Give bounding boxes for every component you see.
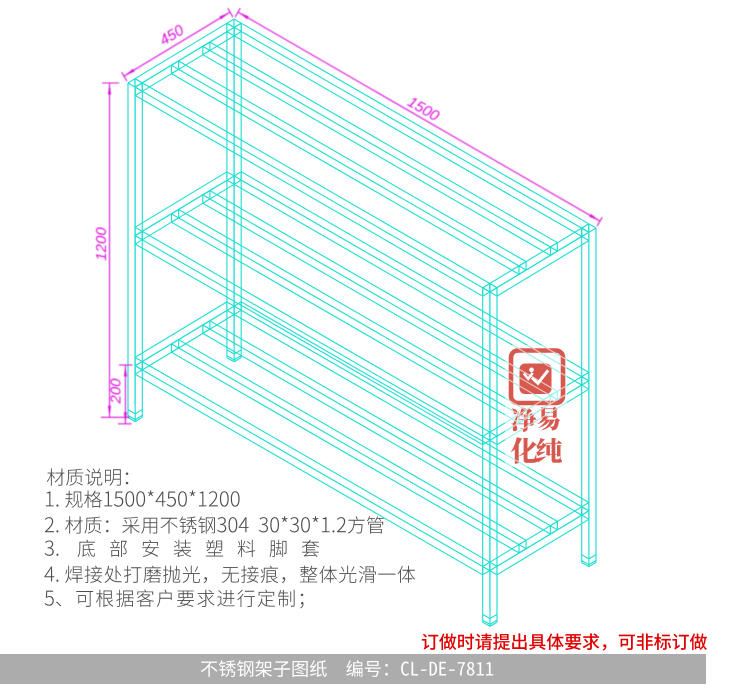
- svg-text:450: 450: [157, 21, 188, 49]
- svg-text:200: 200: [108, 378, 125, 405]
- svg-text:1200: 1200: [93, 227, 110, 261]
